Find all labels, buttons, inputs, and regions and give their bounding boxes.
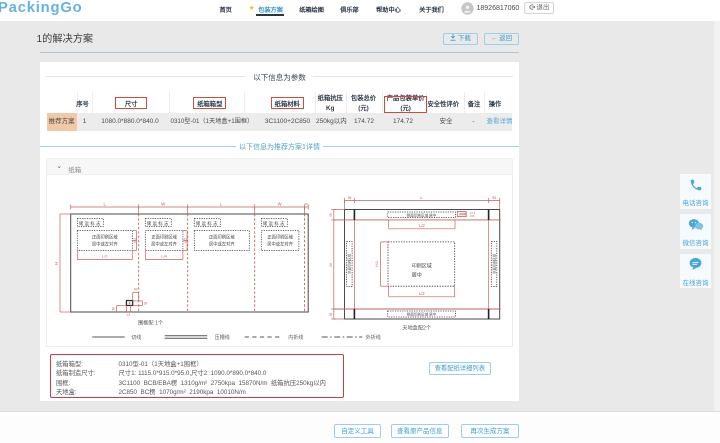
svg-text:正面印刷区域: 正面印刷区域 (209, 233, 235, 240)
svg-text:侧面印刷区域: 侧面印刷区域 (492, 253, 497, 273)
svg-text:L3: L3 (127, 313, 131, 317)
svg-text:L: L (104, 201, 107, 206)
svg-text:储运标志: 储运标志 (263, 219, 286, 226)
svg-text:W: W (328, 262, 333, 266)
svg-text:L/2: L/2 (419, 291, 425, 296)
svg-text:L/4: L/4 (162, 253, 168, 258)
svg-text:H: H (54, 261, 59, 264)
svg-text:储运标志: 储运标志 (196, 219, 219, 226)
svg-text:95: 95 (329, 312, 333, 316)
svg-text:压槽线: 压槽线 (215, 334, 230, 341)
svg-text:侧面印刷区域 居中: 侧面印刷区域 居中 (407, 311, 437, 316)
svg-text:正面印刷区域: 正面印刷区域 (152, 233, 178, 240)
svg-text:10: 10 (305, 202, 309, 206)
svg-text:印刷区域: 印刷区域 (412, 262, 432, 269)
svg-text:95: 95 (348, 195, 352, 199)
svg-text:30: 30 (144, 301, 148, 305)
svg-text:切线: 切线 (131, 334, 141, 341)
svg-text:L: L (220, 201, 223, 206)
svg-text:W: W (162, 201, 166, 206)
svg-text:天地盒配2个: 天地盒配2个 (403, 323, 433, 331)
svg-text:侧面印刷区域: 侧面印刷区域 (347, 253, 352, 273)
svg-text:侧面印刷区域 居中: 侧面印刷区域 居中 (407, 212, 437, 217)
svg-text:60: 60 (134, 287, 138, 291)
svg-text:H/2: H/2 (133, 237, 137, 242)
svg-text:储运标志: 储运标志 (147, 219, 170, 226)
svg-text:95: 95 (329, 213, 333, 217)
svg-text:居中或左对齐: 居中或左对齐 (209, 240, 235, 247)
svg-text:围框配 1个: 围框配 1个 (138, 318, 164, 326)
svg-text:储运标志: 储运标志 (79, 219, 102, 226)
svg-text:100: 100 (470, 213, 475, 217)
svg-text:居中: 居中 (412, 271, 422, 278)
svg-text:居中或左对齐: 居中或左对齐 (268, 240, 294, 247)
svg-text:L: L (421, 194, 424, 199)
svg-text:外折线: 外折线 (366, 334, 381, 341)
svg-text:95: 95 (493, 195, 497, 199)
svg-text:H/2: H/2 (375, 261, 379, 267)
svg-text:W: W (278, 201, 282, 206)
svg-text:正面印刷区域: 正面印刷区域 (92, 233, 118, 240)
svg-text:30: 30 (112, 306, 116, 310)
svg-text:L/2: L/2 (419, 223, 425, 228)
svg-text:内折线: 内折线 (288, 334, 303, 341)
svg-text:居中或左对齐: 居中或左对齐 (152, 240, 178, 247)
svg-text:正面印刷区域: 正面印刷区域 (268, 233, 294, 240)
svg-text:居中或左对齐: 居中或左对齐 (92, 240, 118, 247)
svg-text:H/2: H/2 (184, 237, 188, 242)
svg-text:L/2: L/2 (102, 253, 108, 258)
